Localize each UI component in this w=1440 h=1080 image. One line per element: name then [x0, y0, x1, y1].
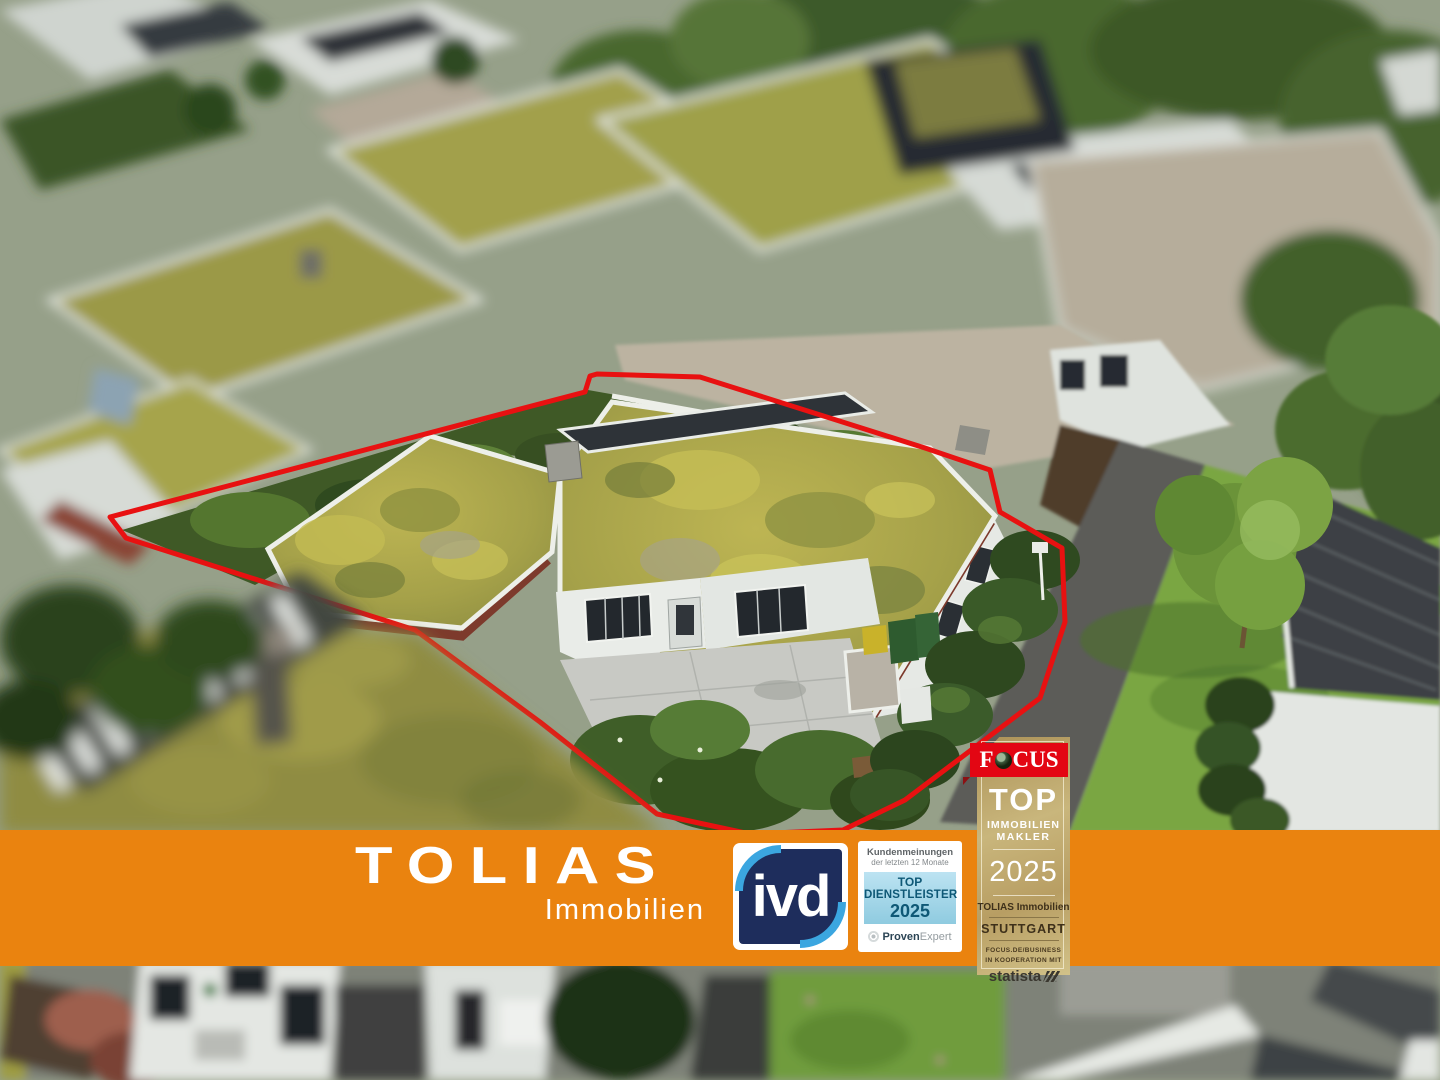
focus-logo-cus: CUS — [1013, 747, 1059, 773]
pe-heading: Kundenmeinungen — [862, 847, 958, 858]
pe-award-box: TOP DIENSTLEISTER 2025 — [864, 872, 956, 924]
divider — [993, 895, 1055, 896]
statista-logo-icon — [1043, 971, 1060, 982]
ivd-badge: ivd — [733, 843, 848, 950]
ivd-label: ivd — [733, 849, 848, 944]
proven-expert-seal-icon — [868, 931, 879, 942]
real-estate-flyer: TOLIAS Immobilien ivd Kundenmeinungen de… — [0, 0, 1440, 1080]
pe-logo-bold: Proven — [882, 931, 919, 943]
focus-award-category2: MAKLER — [977, 831, 1070, 843]
focus-recipient: TOLIAS Immobilien — [977, 902, 1070, 913]
focus-award-category: IMMOBILIEN — [977, 819, 1070, 831]
tolias-wordmark-sub: Immobilien — [355, 894, 707, 927]
focus-award-badge: FCUS TOP IMMOBILIEN MAKLER 2025 TOLIAS I… — [970, 733, 1070, 975]
divider — [993, 849, 1055, 850]
tolias-wordmark: TOLIAS — [355, 840, 770, 892]
focus-award-year: 2025 — [977, 856, 1070, 889]
tolias-logo: TOLIAS Immobilien — [355, 840, 707, 927]
statista-logo: statista — [977, 968, 1070, 985]
focus-ribbon-fold — [963, 777, 970, 785]
divider — [989, 940, 1059, 941]
focus-logo: FCUS — [970, 743, 1068, 777]
focus-footnote2: IN KOOPERATION MIT — [977, 956, 1070, 966]
pe-subheading: der letzten 12 Monate — [862, 858, 958, 868]
statista-wordmark: statista — [989, 968, 1042, 985]
pe-award-year: 2025 — [864, 902, 956, 922]
globe-icon — [995, 752, 1012, 769]
focus-footnote1: FOCUS.DE/BUSINESS — [977, 946, 1070, 956]
focus-award-top: TOP — [977, 785, 1070, 814]
focus-logo-f: F — [979, 747, 993, 773]
proven-expert-logo: ProvenExpert — [862, 931, 958, 943]
focus-award-body: TOP IMMOBILIEN MAKLER 2025 TOLIAS Immobi… — [977, 781, 1070, 985]
focus-city: STUTTGART — [977, 922, 1070, 936]
pe-logo-light: Expert — [920, 931, 952, 943]
proven-expert-badge: Kundenmeinungen der letzten 12 Monate TO… — [858, 841, 962, 952]
pe-award-top: TOP — [864, 876, 956, 889]
bottom-strip — [0, 960, 1440, 1080]
divider — [989, 917, 1059, 918]
brand-banner: TOLIAS Immobilien ivd Kundenmeinungen de… — [0, 830, 1440, 966]
